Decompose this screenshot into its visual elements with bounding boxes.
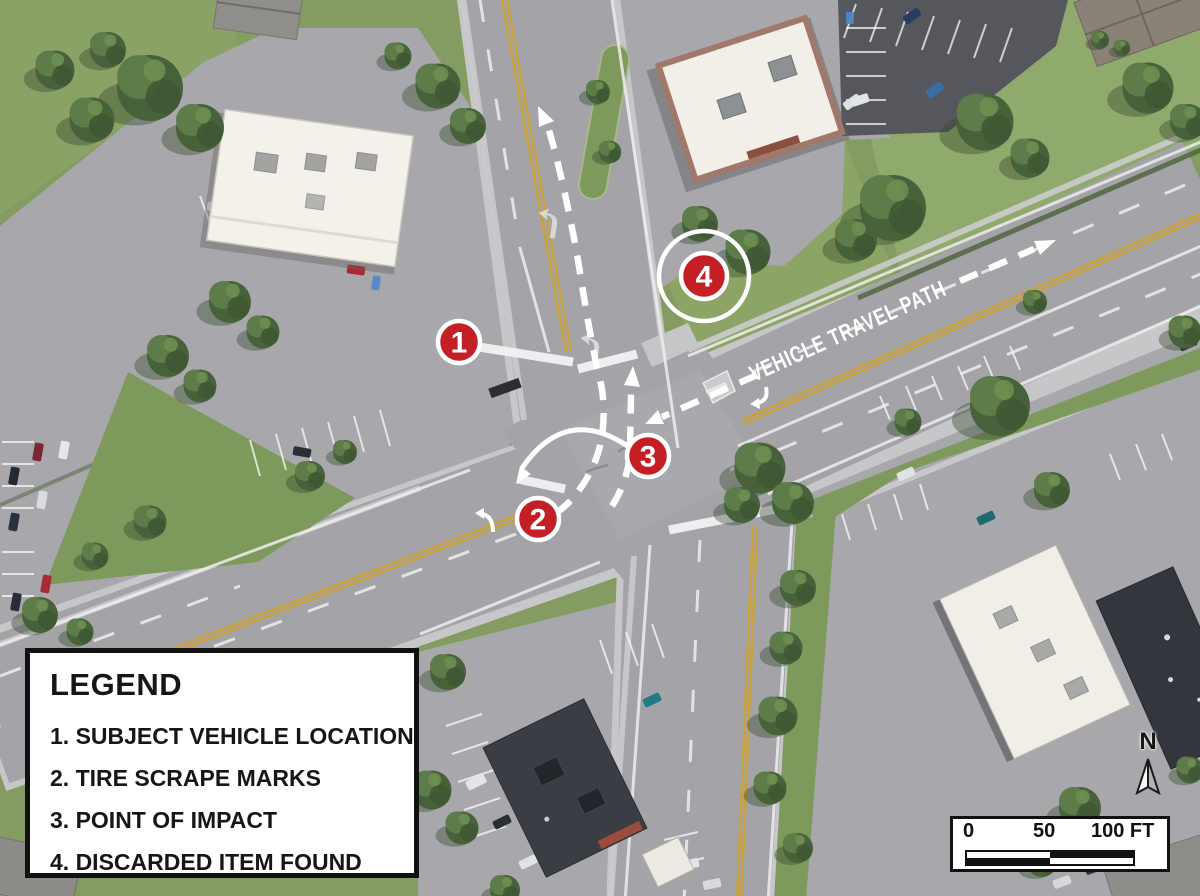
building-northwest: [200, 109, 414, 275]
legend-list: 1. SUBJECT VEHICLE LOCATION 2. TIRE SCRA…: [50, 715, 394, 883]
scale-tick-100: 100 FT: [1091, 820, 1154, 843]
scale-tick-50: 50: [1033, 820, 1055, 843]
north-arrow-icon: [1124, 754, 1172, 808]
north-label: N: [1124, 730, 1172, 754]
legend-title: LEGEND: [50, 667, 394, 703]
scale-bar-graphic: [965, 850, 1135, 866]
legend-item-3: 3. POINT OF IMPACT: [50, 799, 394, 841]
svg-text:4: 4: [696, 261, 713, 294]
aerial-accident-diagram: VEHICLE TRAVEL PATH 1 2 3 4 LEGEND 1. SU…: [0, 0, 1200, 896]
legend-item-2: 2. TIRE SCRAPE MARKS: [50, 757, 394, 799]
svg-text:2: 2: [530, 504, 547, 537]
svg-text:1: 1: [451, 327, 468, 360]
scale-bar: 0 50 100 FT: [950, 816, 1170, 872]
scale-tick-0: 0: [963, 820, 974, 843]
marker-3: 3: [627, 435, 669, 477]
legend: LEGEND 1. SUBJECT VEHICLE LOCATION 2. TI…: [25, 648, 419, 878]
scale-labels: 0 50 100 FT: [953, 819, 1167, 843]
north-arrow: N: [1124, 730, 1172, 808]
svg-text:3: 3: [640, 441, 657, 474]
legend-item-1: 1. SUBJECT VEHICLE LOCATION: [50, 715, 394, 757]
legend-item-4: 4. DISCARDED ITEM FOUND: [50, 841, 394, 883]
marker-1: 1: [438, 321, 480, 363]
marker-2: 2: [517, 498, 559, 540]
